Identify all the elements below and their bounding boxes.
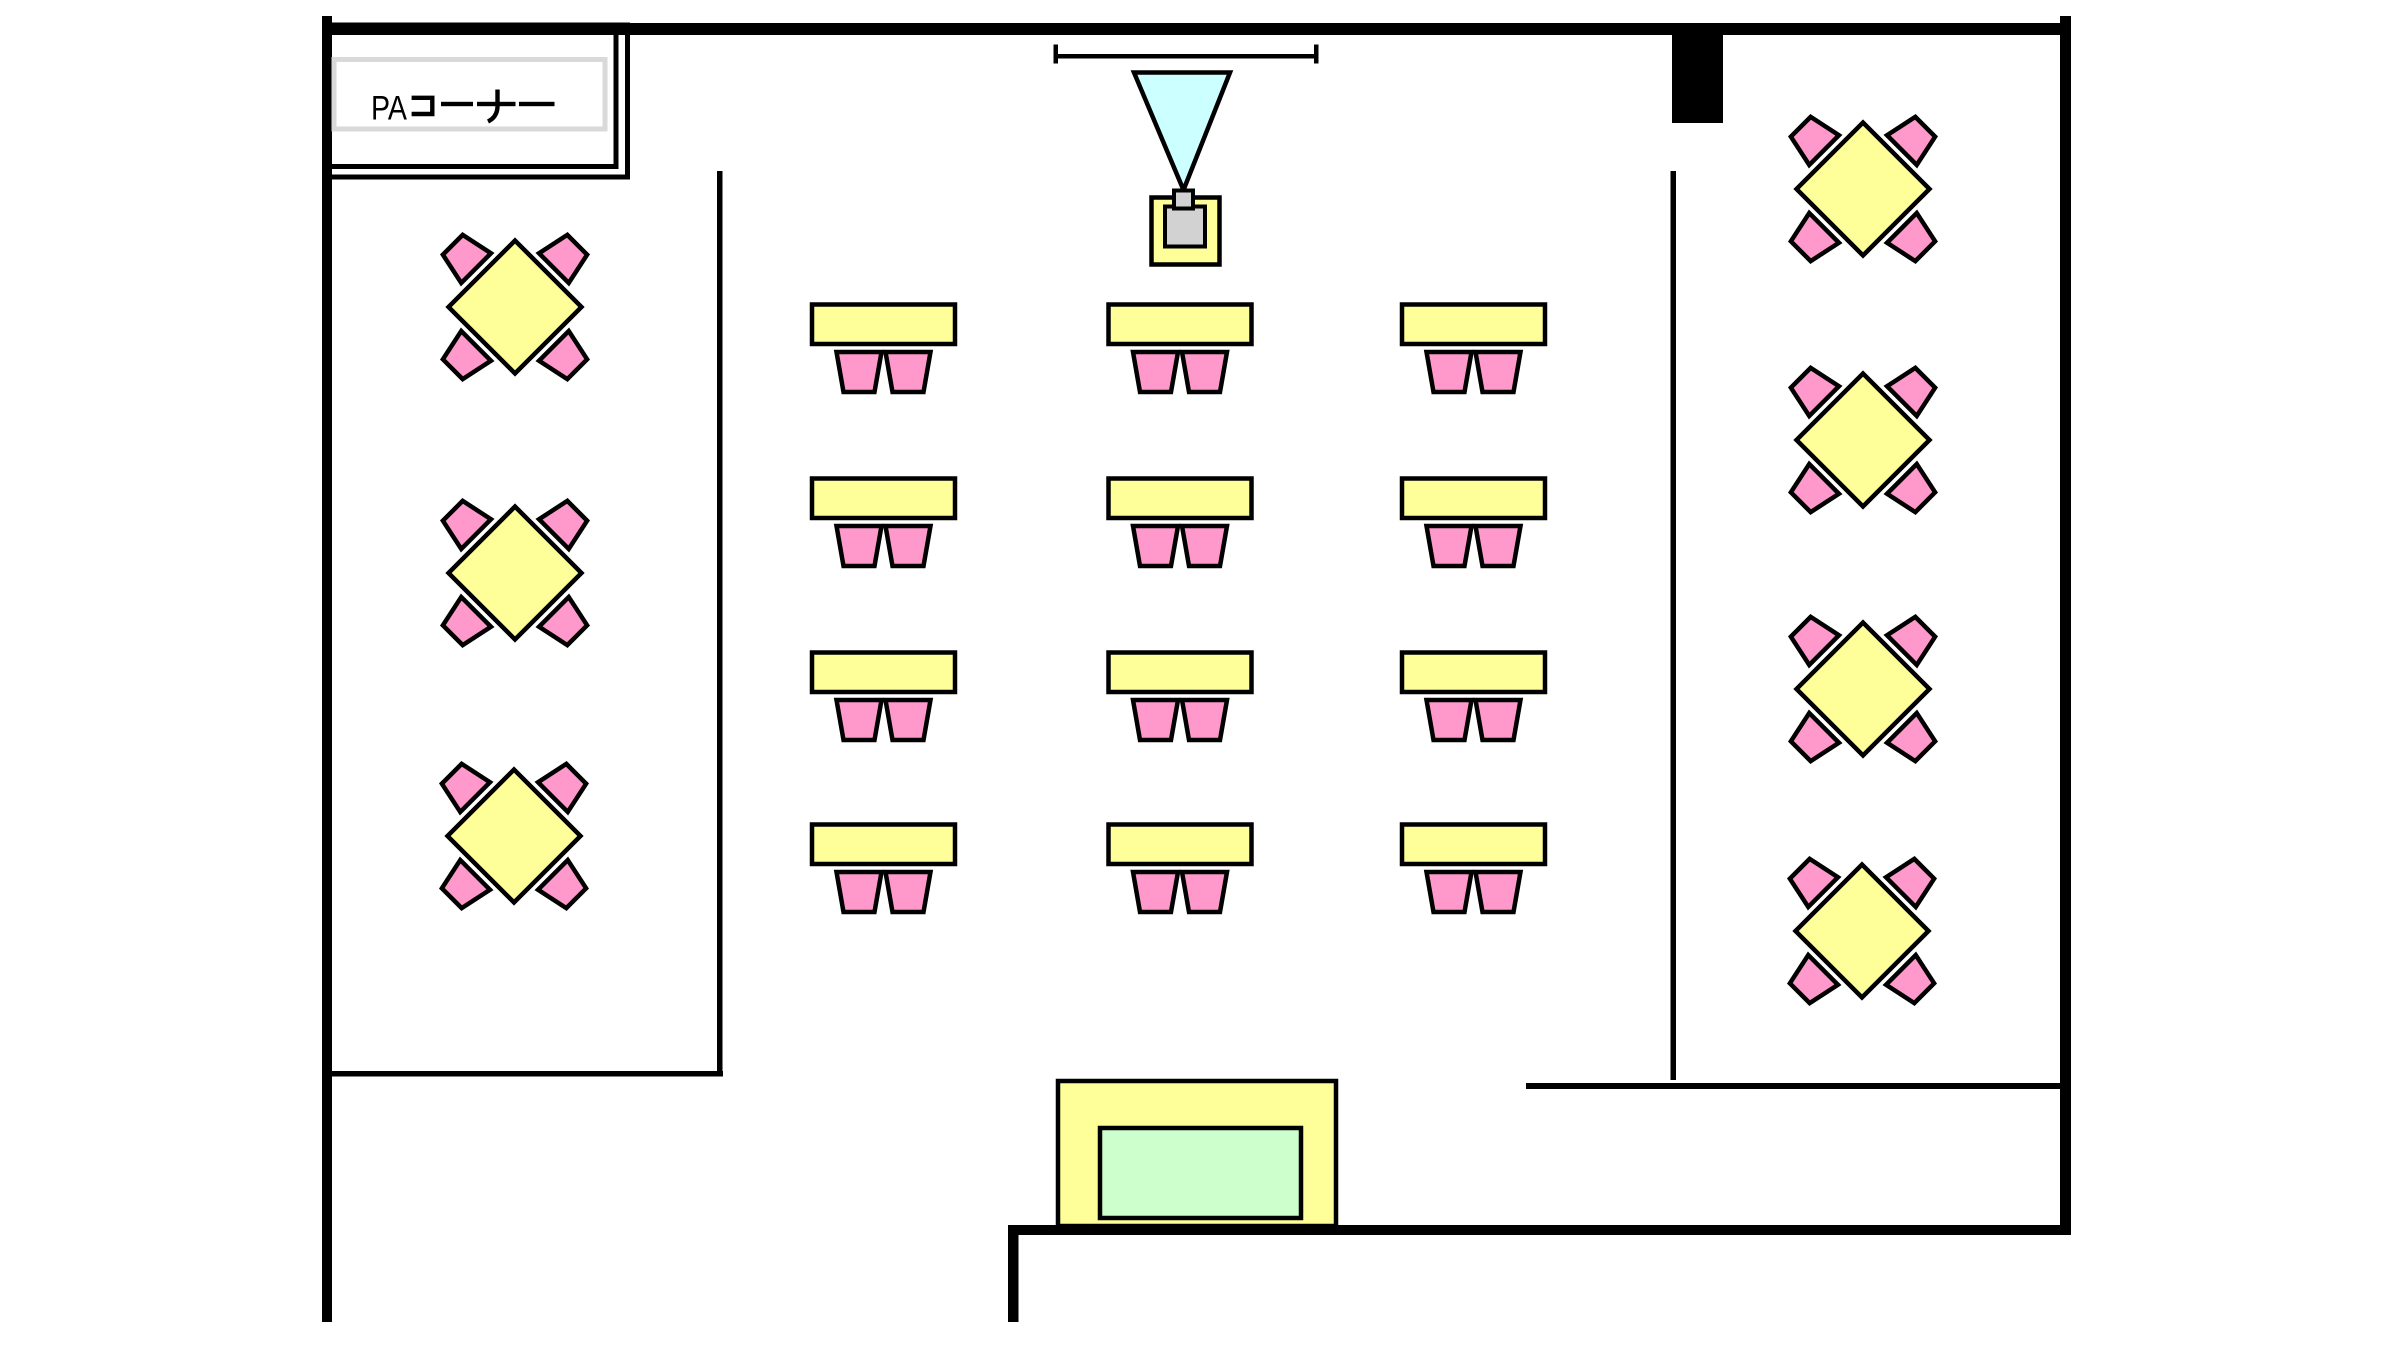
svg-text:PA: PA <box>371 90 407 128</box>
